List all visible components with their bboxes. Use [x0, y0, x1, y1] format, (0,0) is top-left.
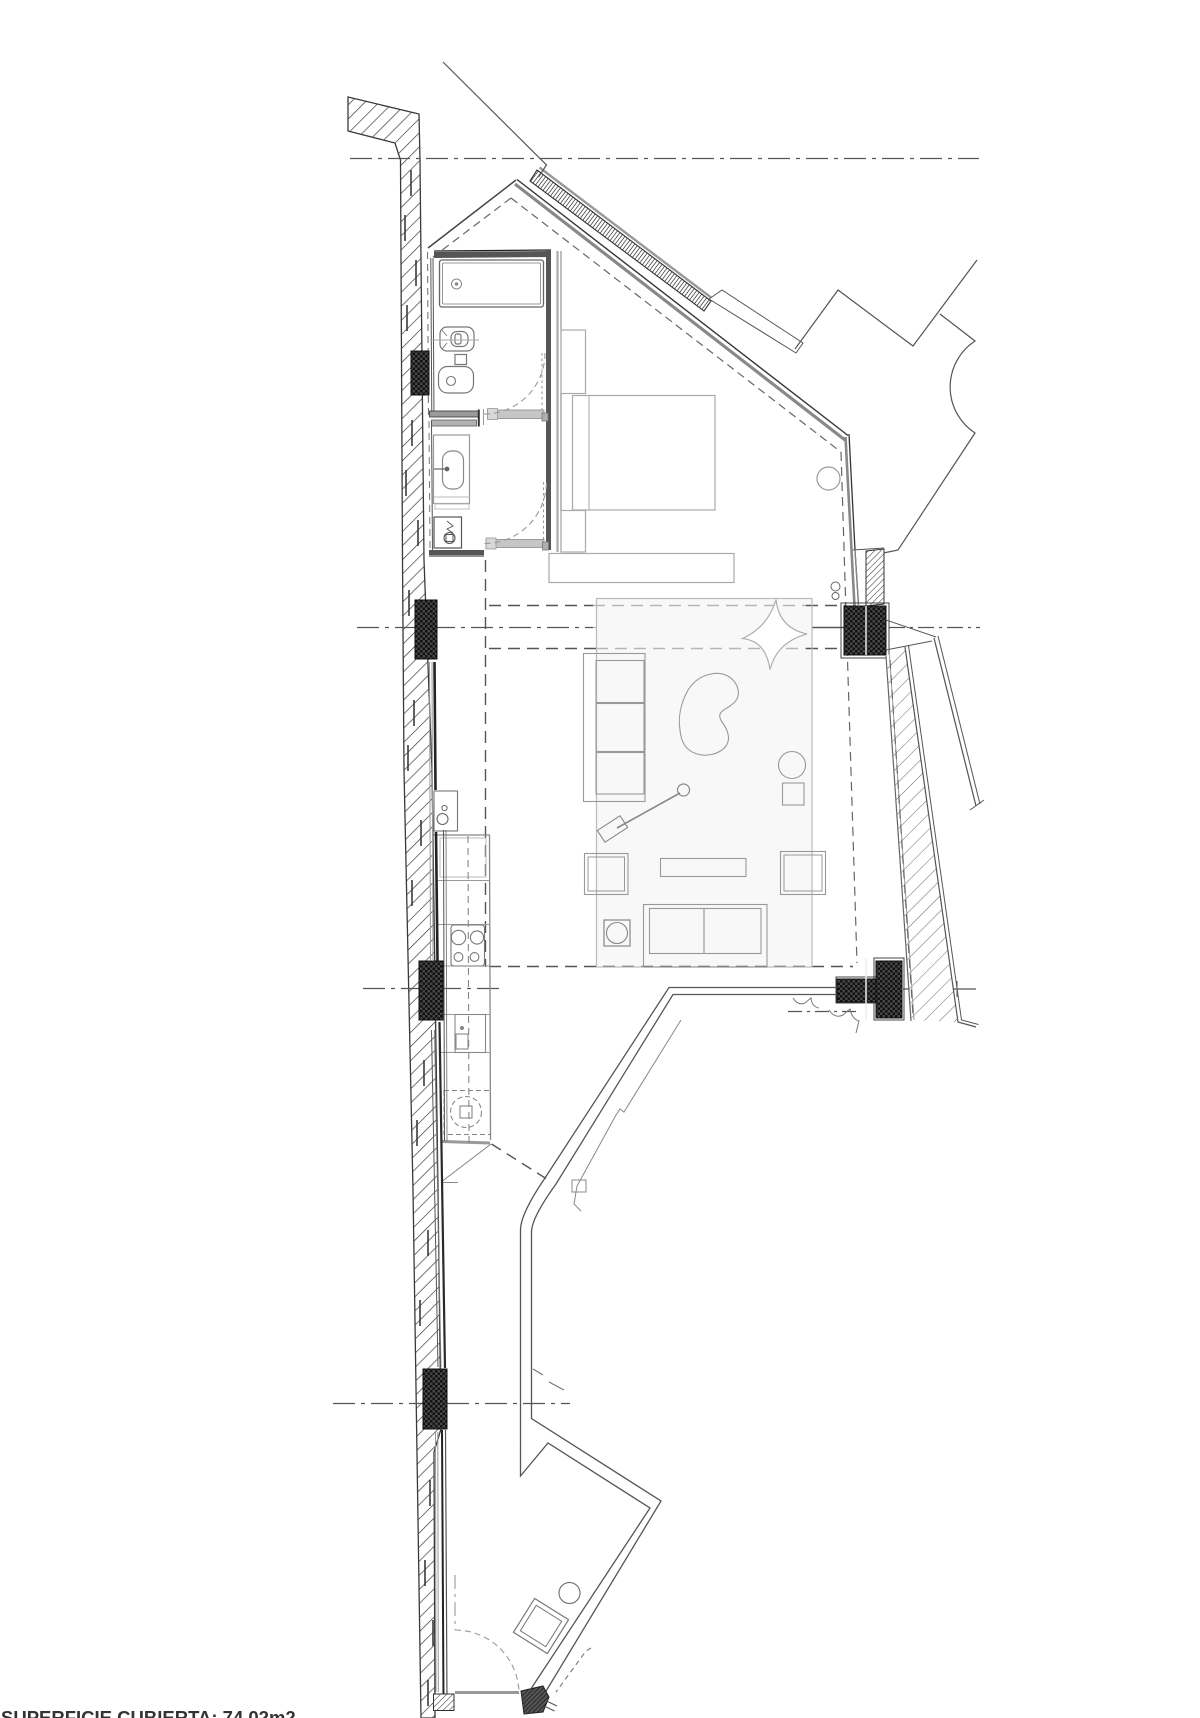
- svg-text:SUPERFICIE CUBIERTA: 74,02m2: SUPERFICIE CUBIERTA: 74,02m2: [1, 1707, 296, 1718]
